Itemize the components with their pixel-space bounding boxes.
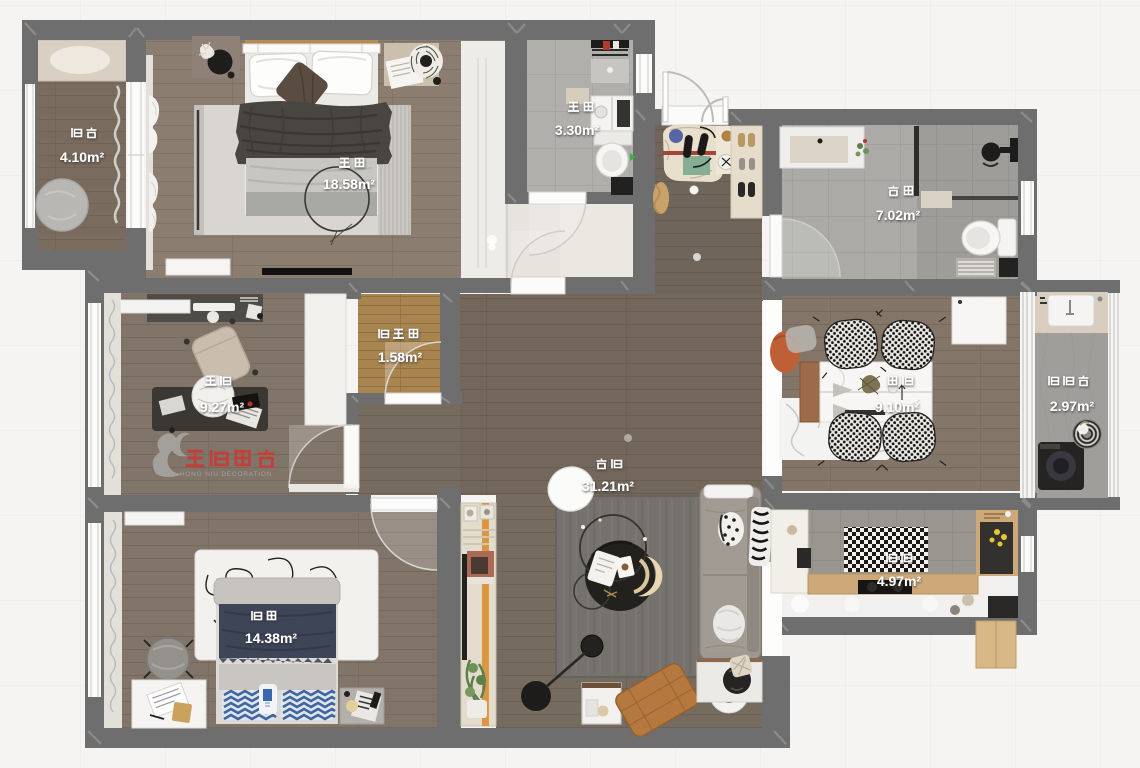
svg-text:9.27m²: 9.27m²	[200, 399, 245, 415]
svg-text:4.97m²: 4.97m²	[877, 573, 922, 589]
svg-text:31.21m²: 31.21m²	[582, 478, 634, 494]
svg-text:14.38m²: 14.38m²	[245, 630, 297, 646]
svg-text:2.97m²: 2.97m²	[1050, 398, 1095, 414]
svg-text:R: R	[170, 445, 175, 451]
svg-text:3.30m²: 3.30m²	[555, 122, 600, 138]
svg-text:7.02m²: 7.02m²	[876, 207, 921, 223]
svg-text:HONG NIU DECORATION: HONG NIU DECORATION	[180, 471, 272, 478]
svg-text:1.58m²: 1.58m²	[378, 349, 423, 365]
svg-text:9.10m²: 9.10m²	[875, 399, 920, 415]
svg-text:18.58m²: 18.58m²	[323, 176, 375, 192]
svg-text:4.10m²: 4.10m²	[60, 149, 105, 165]
